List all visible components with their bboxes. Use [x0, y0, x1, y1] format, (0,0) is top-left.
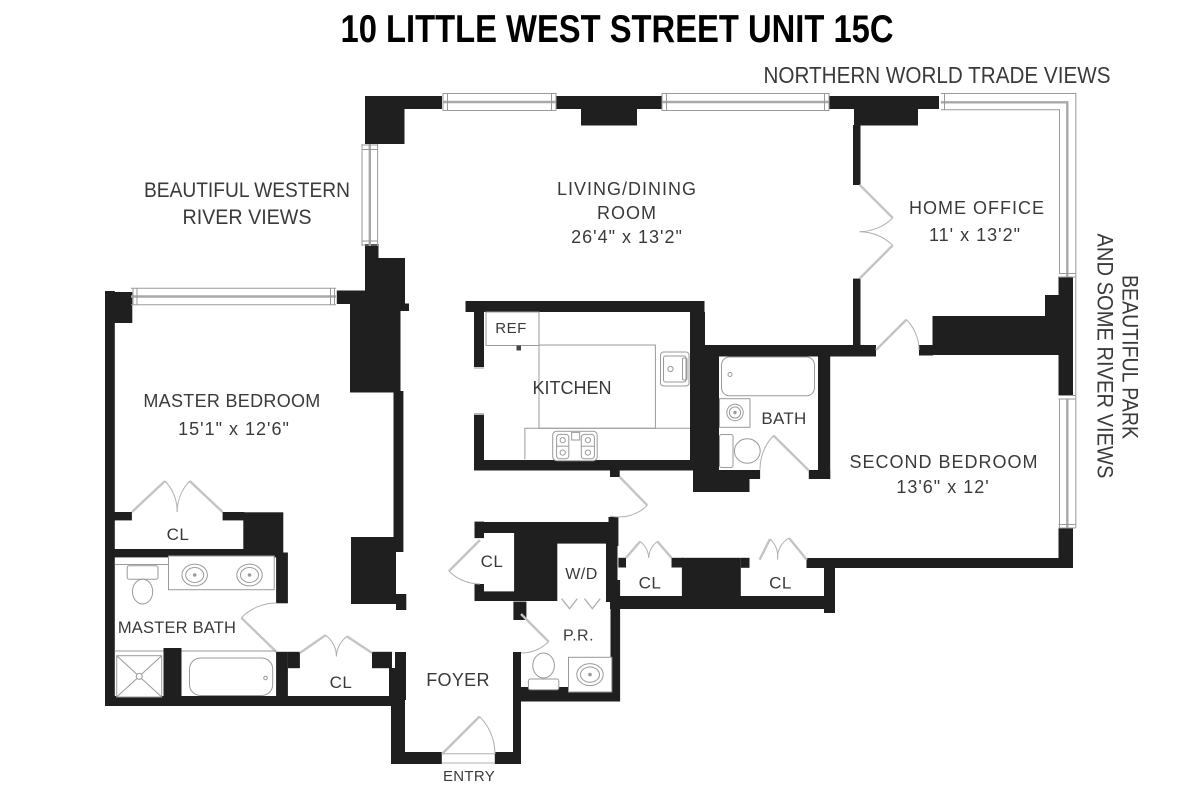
svg-text:ENTRY: ENTRY — [443, 768, 495, 785]
svg-text:CL: CL — [167, 525, 190, 544]
svg-text:BEAUTIFUL WESTERN: BEAUTIFUL WESTERN — [144, 179, 350, 202]
svg-text:15'1" x 12'6": 15'1" x 12'6" — [178, 419, 290, 439]
svg-text:NORTHERN WORLD TRADE VIEWS: NORTHERN WORLD TRADE VIEWS — [764, 62, 1111, 88]
svg-text:ROOM: ROOM — [597, 203, 657, 223]
svg-text:CL: CL — [769, 574, 792, 593]
svg-text:CL: CL — [639, 574, 662, 593]
svg-text:FOYER: FOYER — [426, 670, 490, 690]
svg-text:11' x 13'2": 11' x 13'2" — [929, 225, 1021, 245]
svg-text:CL: CL — [481, 552, 504, 571]
svg-text:HOME OFFICE: HOME OFFICE — [909, 198, 1045, 218]
svg-text:10 LITTLE WEST STREET UNIT 15C: 10 LITTLE WEST STREET UNIT 15C — [341, 8, 894, 51]
svg-text:LIVING/DINING: LIVING/DINING — [557, 179, 697, 199]
svg-text:KITCHEN: KITCHEN — [532, 378, 611, 398]
svg-text:CL: CL — [330, 673, 353, 692]
svg-text:MASTER BEDROOM: MASTER BEDROOM — [143, 391, 320, 411]
svg-text:AND SOME RIVER VIEWS: AND SOME RIVER VIEWS — [1093, 234, 1118, 479]
svg-text:BATH: BATH — [761, 409, 806, 428]
svg-text:REF: REF — [495, 320, 527, 337]
svg-text:W/D: W/D — [565, 566, 598, 583]
svg-text:26'4" x 13'2": 26'4" x 13'2" — [571, 227, 683, 247]
svg-text:P.R.: P.R. — [563, 628, 594, 645]
svg-text:13'6" x 12': 13'6" x 12' — [896, 477, 989, 497]
svg-text:SECOND BEDROOM: SECOND BEDROOM — [849, 452, 1038, 472]
svg-text:RIVER VIEWS: RIVER VIEWS — [183, 206, 312, 229]
svg-text:BEAUTIFUL PARK: BEAUTIFUL PARK — [1118, 275, 1143, 439]
svg-text:MASTER BATH: MASTER BATH — [118, 619, 236, 637]
